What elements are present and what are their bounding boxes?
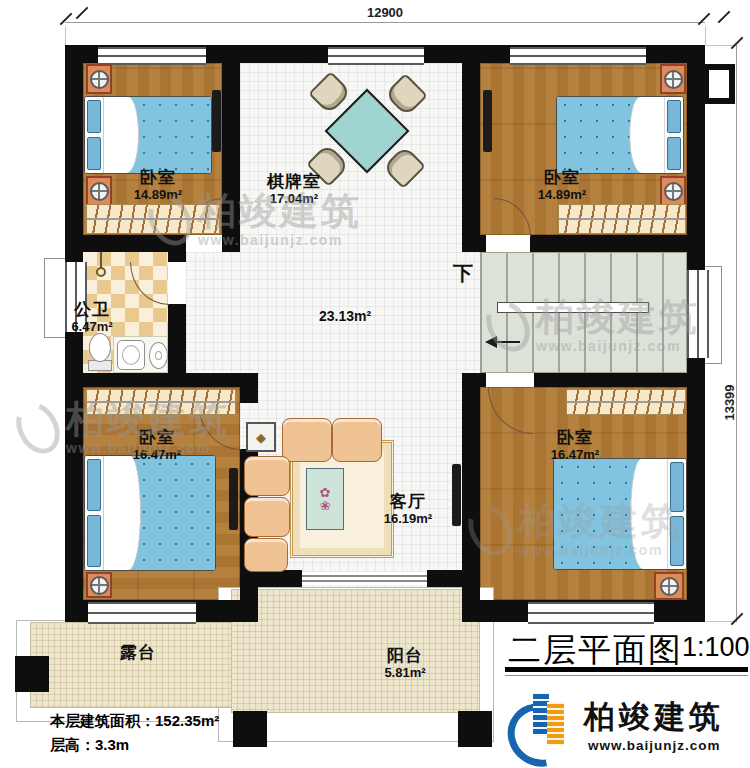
- floor-area-label: 本层建筑面积：: [50, 712, 155, 729]
- dimension-line-right: [736, 45, 737, 622]
- bed-mattress: [557, 97, 664, 173]
- side-table-lamp: ◆: [246, 422, 276, 452]
- wall-connector-right: [462, 570, 480, 622]
- company-website: www.baijunjz.com: [588, 738, 721, 753]
- stair-direction-arrow-icon: [485, 336, 497, 348]
- balcony-sliding-door: [302, 572, 427, 585]
- label-bedroom-br: 卧室16.47m²: [523, 428, 627, 462]
- wall-bathroom-east-b: [168, 304, 186, 373]
- floor-plan-canvas: 下 ◆ ✿❀: [0, 0, 750, 768]
- floor-height-label: 层高：: [50, 736, 95, 753]
- bed-sheet: [629, 97, 664, 173]
- wall-bedroom-br-west: [462, 387, 480, 570]
- corner-mark: [76, 7, 89, 20]
- witness-line: [705, 26, 706, 45]
- bed-headboard: [85, 456, 104, 570]
- logo-building-orange-icon: [547, 702, 564, 746]
- bed-sheet: [104, 456, 141, 570]
- wardrobe: [86, 389, 236, 415]
- wall-bedroom-br-north-a: [462, 373, 486, 387]
- window: [98, 47, 206, 65]
- wall-stub: [480, 235, 486, 252]
- sofa-seat: [282, 418, 332, 462]
- wall-bedroom-bl-east-a: [240, 387, 258, 403]
- nightstand: [86, 572, 112, 598]
- wall-bedroom-tr-west: [462, 63, 480, 252]
- sofa-seat: [244, 538, 288, 572]
- wardrobe: [86, 204, 220, 234]
- wardrobe: [558, 204, 686, 234]
- bed-sheet: [630, 459, 667, 569]
- wall-bedroom-tr-south: [530, 235, 687, 252]
- coffee-table: ✿❀: [306, 468, 344, 530]
- label-bedroom-bl: 卧室16.47m²: [107, 428, 207, 462]
- column: [233, 711, 267, 747]
- sink: [149, 342, 168, 369]
- floor-area-text: 本层建筑面积：152.35m²: [50, 712, 219, 731]
- label-bathroom: 公卫6.47m²: [52, 300, 132, 334]
- corner-mark: [718, 11, 731, 24]
- label-bedroom-tr: 卧室14.89m²: [512, 168, 612, 202]
- window: [528, 602, 654, 624]
- sofa-seat: [244, 497, 290, 537]
- bed: [553, 458, 687, 570]
- label-balcony: 阳台5.81m²: [355, 646, 455, 680]
- stair-railing: [497, 302, 649, 313]
- toilet: [89, 333, 111, 362]
- stair-down-label: 下: [453, 260, 473, 287]
- label-bedroom-tl: 卧室14.89m²: [108, 168, 208, 202]
- window: [687, 270, 709, 358]
- bed-headboard: [667, 459, 686, 569]
- sofa-seat: [244, 456, 290, 496]
- washer-drum: [122, 345, 140, 365]
- window: [328, 47, 424, 65]
- floor-height-text: 层高：3.3m: [50, 736, 129, 755]
- compass-dial-icon: [90, 182, 109, 201]
- title-underline: [505, 667, 748, 672]
- flue-inner: [709, 70, 729, 98]
- dimension-tick: [698, 13, 711, 26]
- bed: [84, 455, 216, 571]
- stair-edge-line: [480, 252, 482, 373]
- tv: [483, 90, 492, 152]
- company-name: 柏竣建筑: [584, 696, 724, 738]
- lamp-cord: [100, 252, 102, 268]
- compass-dial-icon: [664, 182, 683, 201]
- bed-mattress: [554, 459, 667, 569]
- wall-bedroom-bl-north: [65, 373, 258, 387]
- floor-area-value: 152.35m²: [155, 712, 219, 729]
- label-hall-area: 23.13m²: [300, 308, 390, 324]
- bed: [556, 96, 684, 174]
- column: [15, 656, 49, 692]
- nightstand: [654, 572, 684, 600]
- stair-direction-line: [496, 341, 520, 343]
- ceiling-lamp-icon: [96, 267, 106, 277]
- bed-mattress: [104, 97, 211, 173]
- wall-connector-left: [240, 570, 258, 622]
- label-game-room: 棋牌室17.04m²: [242, 172, 346, 206]
- nightstand: [660, 64, 686, 94]
- witness-line: [65, 26, 66, 45]
- bed-mattress: [104, 456, 215, 570]
- column: [458, 711, 492, 747]
- company-logo-icon: [505, 688, 577, 762]
- drawing-scale: 1:100: [682, 632, 750, 663]
- dimension-line-top: [65, 22, 705, 23]
- title-underline-thin: [505, 675, 748, 676]
- window: [510, 47, 646, 65]
- nightstand: [660, 176, 686, 206]
- nightstand: [86, 64, 112, 94]
- dimension-tick: [731, 613, 744, 626]
- compass-dial-icon: [660, 577, 679, 596]
- bed: [84, 96, 212, 174]
- dimension-right-value: 13399: [722, 368, 737, 438]
- flower-decor-icon: ❀: [320, 499, 331, 512]
- watermark-logo-icon: [8, 395, 69, 461]
- label-terrace: 露台: [98, 643, 178, 663]
- window: [88, 602, 196, 624]
- bed-headboard: [85, 97, 104, 173]
- wardrobe: [566, 389, 686, 415]
- tv: [229, 468, 238, 530]
- wall-bedroom-tl-east: [222, 63, 240, 252]
- bed-sheet: [104, 97, 139, 173]
- dimension-tick: [731, 37, 744, 50]
- dimension-top-value: 12900: [340, 5, 430, 20]
- dimension-tick: [60, 13, 73, 26]
- bed-headboard: [664, 97, 683, 173]
- tv: [212, 90, 221, 152]
- compass-dial-icon: [90, 70, 109, 89]
- compass-dial-icon: [90, 576, 109, 595]
- sink-drain: [155, 351, 162, 360]
- label-living-room: 客厅16.19m²: [358, 492, 458, 526]
- compass-dial-icon: [664, 70, 683, 89]
- wall-bathroom-east-a: [168, 252, 186, 262]
- wall-bedroom-tl-south: [83, 235, 186, 252]
- sofa-seat: [332, 418, 382, 462]
- wall-bedroom-br-north-b: [534, 373, 705, 387]
- washing-machine: [117, 340, 145, 370]
- floor-height-value: 3.3m: [95, 736, 129, 753]
